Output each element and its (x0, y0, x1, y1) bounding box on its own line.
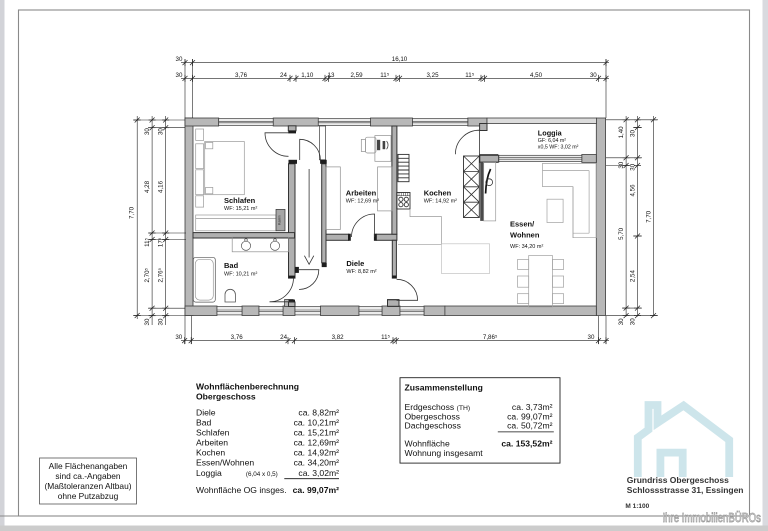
svg-text:ca. 14,92m²: ca. 14,92m² (294, 447, 340, 457)
svg-text:Bad: Bad (196, 418, 212, 428)
svg-text:Ihre ImmobilienBÜROs: Ihre ImmobilienBÜROs (663, 512, 762, 526)
svg-text:Schlafen: Schlafen (196, 428, 230, 438)
svg-text:1,40: 1,40 (618, 126, 625, 139)
svg-text:4,16: 4,16 (157, 180, 164, 193)
svg-text:WF: 34,20 m²: WF: 34,20 m² (510, 244, 543, 250)
svg-text:11⁵: 11⁵ (381, 334, 390, 341)
svg-text:ca. 99,07m²: ca. 99,07m² (293, 485, 339, 495)
svg-text:2,70⁵: 2,70⁵ (144, 267, 151, 282)
svg-text:7,70: 7,70 (129, 206, 136, 219)
svg-text:2,76⁵: 2,76⁵ (157, 267, 164, 282)
svg-text:4,50: 4,50 (530, 72, 543, 79)
svg-text:Wohnung insgesamt: Wohnung insgesamt (405, 448, 484, 458)
svg-text:2,54: 2,54 (629, 270, 636, 283)
svg-text:3,25: 3,25 (426, 72, 439, 79)
svg-text:30: 30 (629, 163, 636, 170)
svg-text:Arbeiten: Arbeiten (196, 438, 228, 448)
svg-text:WF: 15,21 m²: WF: 15,21 m² (224, 206, 257, 212)
svg-text:2,59: 2,59 (350, 72, 363, 79)
svg-text:Kochen: Kochen (424, 188, 452, 197)
svg-text:30: 30 (144, 318, 151, 325)
svg-text:11⁵: 11⁵ (380, 72, 389, 79)
svg-text:Dachgeschoss: Dachgeschoss (405, 421, 461, 431)
svg-text:30: 30 (157, 128, 164, 135)
svg-text:ca. 3,02m²: ca. 3,02m² (298, 468, 339, 478)
svg-text:(6,04 x 0,5): (6,04 x 0,5) (246, 471, 278, 478)
svg-text:Wohnfläche: Wohnfläche (405, 438, 450, 448)
svg-text:13: 13 (328, 72, 335, 79)
svg-text:5,70: 5,70 (618, 227, 625, 240)
svg-text:ca. 34,20m²: ca. 34,20m² (294, 458, 340, 468)
svg-text:GF: 6,04 m²: GF: 6,04 m² (538, 138, 566, 144)
svg-text:16,10: 16,10 (392, 56, 408, 63)
svg-text:Loggia: Loggia (538, 128, 563, 137)
svg-text:WF: 12,69 m²: WF: 12,69 m² (346, 199, 379, 205)
svg-text:Wohnfläche OG insges.: Wohnfläche OG insges. (196, 485, 287, 495)
svg-text:3,76: 3,76 (235, 72, 248, 79)
svg-text:30: 30 (629, 130, 636, 137)
svg-text:Loggia: Loggia (196, 468, 222, 478)
svg-text:Arbeiten: Arbeiten (346, 188, 377, 197)
svg-text:ca. 12,69m²: ca. 12,69m² (294, 438, 340, 448)
svg-text:30: 30 (176, 72, 183, 79)
svg-text:7,86⁵: 7,86⁵ (483, 334, 498, 341)
svg-text:4,28: 4,28 (144, 180, 151, 193)
svg-text:x0,5 WF: 3,02 m²: x0,5 WF: 3,02 m² (538, 145, 579, 151)
svg-text:3,76: 3,76 (231, 334, 244, 341)
svg-text:30: 30 (618, 318, 625, 325)
svg-text:(Maßtoleranzen Altbau): (Maßtoleranzen Altbau) (44, 481, 131, 491)
svg-text:30: 30 (590, 72, 597, 79)
svg-text:7,70: 7,70 (645, 210, 652, 223)
svg-text:24: 24 (280, 334, 287, 341)
svg-text:Diele: Diele (196, 408, 216, 418)
svg-text:sind ca.-Angaben: sind ca.-Angaben (55, 471, 121, 481)
svg-text:Grundriss Obergeschoss: Grundriss Obergeschoss (627, 475, 729, 485)
svg-text:WF: 10,21 m²: WF: 10,21 m² (224, 272, 257, 278)
svg-text:ca. 50,72m²: ca. 50,72m² (507, 421, 553, 431)
svg-text:WF: 14,92 m²: WF: 14,92 m² (424, 199, 457, 205)
svg-text:3,82: 3,82 (332, 334, 345, 341)
svg-text:Essen/Wohnen: Essen/Wohnen (196, 458, 254, 468)
svg-text:4,56: 4,56 (629, 184, 636, 197)
svg-text:ca. 15,21m²: ca. 15,21m² (294, 428, 340, 438)
svg-text:Kochen: Kochen (196, 447, 225, 457)
svg-text:Wohnflächenberechnung: Wohnflächenberechnung (196, 382, 299, 392)
svg-text:Wohnen: Wohnen (510, 230, 540, 239)
svg-text:24: 24 (280, 72, 287, 79)
svg-text:30: 30 (588, 334, 595, 341)
svg-text:30: 30 (144, 128, 151, 135)
svg-text:Zusammenstellung: Zusammenstellung (405, 383, 483, 393)
svg-text:17⁵: 17⁵ (157, 237, 164, 247)
svg-text:Kamin: Kamin (278, 215, 282, 225)
svg-text:M 1:100: M 1:100 (625, 503, 649, 510)
svg-text:WF: 8,82 m²: WF: 8,82 m² (346, 269, 376, 275)
svg-text:ca. 153,52m²: ca. 153,52m² (501, 438, 552, 448)
svg-text:ca. 8,82m²: ca. 8,82m² (298, 408, 339, 418)
svg-text:30: 30 (629, 318, 636, 325)
svg-text:1,10: 1,10 (301, 72, 314, 79)
svg-text:Essen/: Essen/ (510, 220, 535, 229)
svg-text:30: 30 (176, 56, 183, 63)
svg-text:Diele: Diele (346, 259, 364, 268)
svg-text:Alle Flächenangaben: Alle Flächenangaben (49, 461, 128, 471)
svg-text:11⁵: 11⁵ (465, 72, 474, 79)
svg-text:ca. 10,21m²: ca. 10,21m² (294, 418, 340, 428)
svg-text:Schlafen: Schlafen (224, 196, 256, 205)
svg-text:30: 30 (157, 318, 164, 325)
svg-text:Schlossstrasse 31, Essingen: Schlossstrasse 31, Essingen (627, 485, 744, 495)
svg-text:30: 30 (175, 334, 182, 341)
svg-text:ohne Putzabzug: ohne Putzabzug (58, 491, 119, 501)
svg-text:Bad: Bad (224, 261, 239, 270)
svg-text:30: 30 (618, 161, 625, 168)
svg-text:Obergeschoss: Obergeschoss (196, 392, 256, 402)
svg-text:11⁵: 11⁵ (144, 237, 151, 246)
